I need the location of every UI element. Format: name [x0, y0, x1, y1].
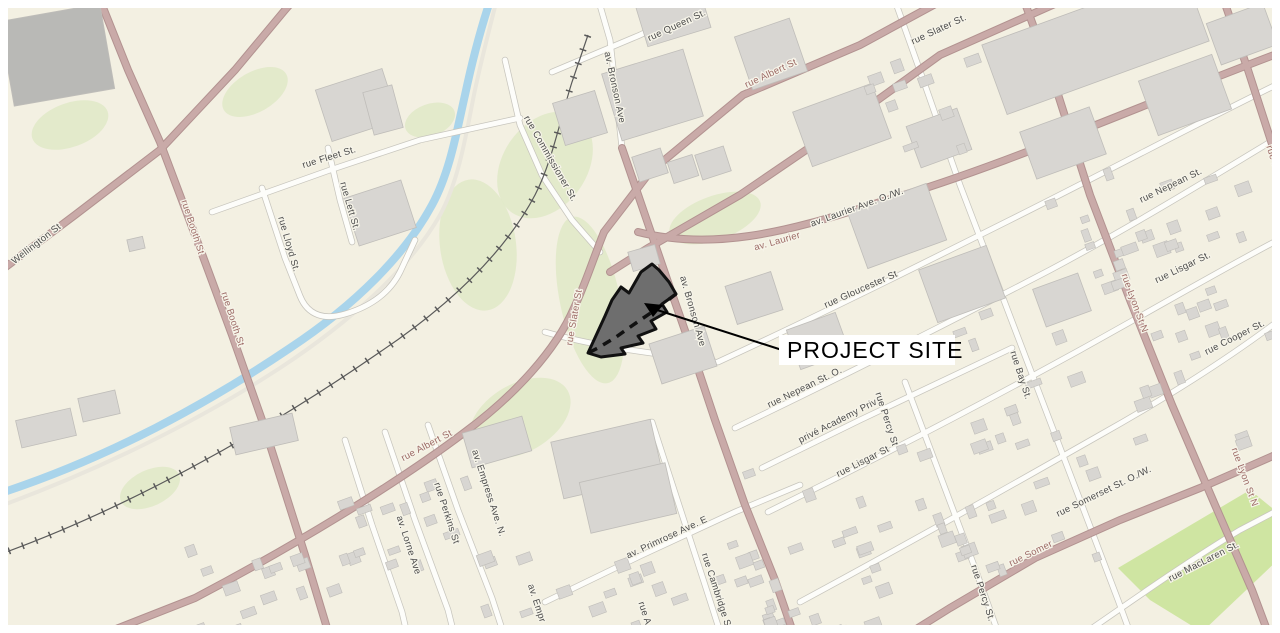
map-canvas: rue Queen St.rue Fleet St.rue Lett St.ru…: [0, 0, 1280, 633]
house: [828, 624, 845, 633]
map-layers: rue Queen St.rue Fleet St.rue Lett St.ru…: [0, 0, 1280, 633]
house: [770, 625, 788, 633]
building: [0, 4, 115, 106]
house: [656, 627, 668, 633]
site-location-map: rue Queen St.rue Fleet St.rue Lett St.ru…: [0, 0, 1280, 633]
house: [834, 625, 850, 633]
project-site-label: PROJECT SITE: [787, 337, 963, 363]
